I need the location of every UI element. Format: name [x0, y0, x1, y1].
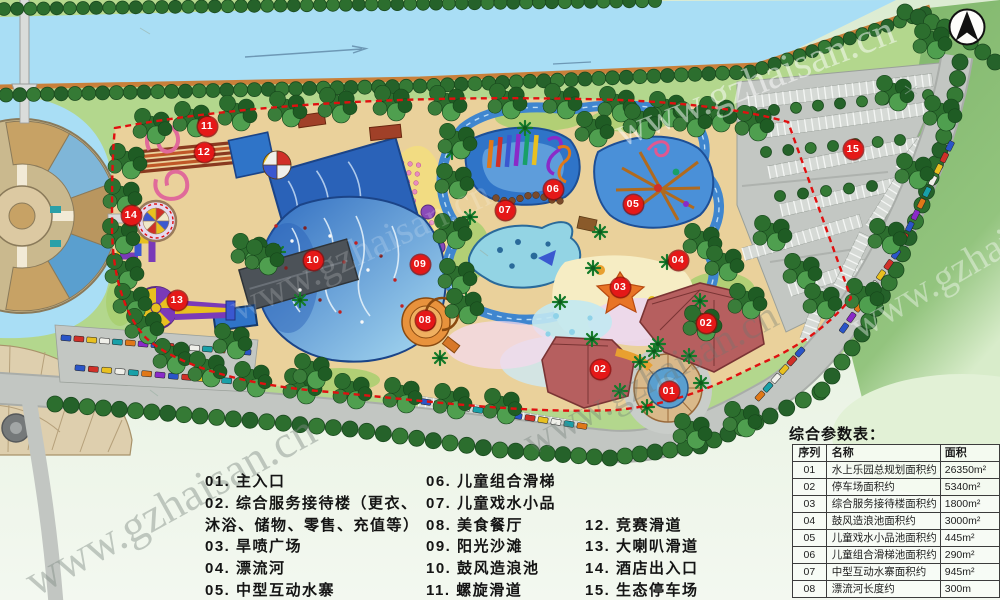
param-table-row: 05儿童戏水小品池面积约445m² [793, 530, 1000, 547]
plan-marker-03: 03 [611, 278, 630, 297]
plan-marker-02: 02 [591, 360, 610, 379]
param-table-title: 综合参数表： [789, 423, 885, 444]
legend-item: 09. 阳光沙滩 [426, 535, 523, 556]
param-table-header: 面积 [940, 445, 999, 462]
plan-marker-09: 09 [411, 255, 430, 274]
param-table-row: 03综合服务接待楼面积约1800m² [793, 496, 1000, 513]
param-table-row: 08漂流河长度约300m [793, 581, 1000, 598]
legend-item: 05. 中型互动水寨 [205, 579, 335, 600]
legend-item: 10. 鼓风造浪池 [426, 557, 540, 578]
plan-marker-07: 07 [496, 201, 515, 220]
legend-item: 11. 螺旋滑道 [426, 579, 522, 600]
legend-item: 06. 儿童组合滑梯 [426, 470, 556, 491]
water-park-master-plan: www.gzhaisan.cnwww.gzhaisan.cnwww.gzhais… [0, 0, 1000, 600]
legend-item: 01. 主入口 [205, 470, 286, 491]
plan-marker-04: 04 [669, 251, 688, 270]
plan-marker-01: 01 [660, 382, 679, 401]
legend-item: 07. 儿童戏水小品 [426, 492, 556, 513]
legend-item: 13. 大喇叭滑道 [585, 535, 699, 556]
plan-marker-13: 13 [168, 291, 187, 310]
legend-item: 15. 生态停车场 [585, 579, 699, 600]
plan-marker-11: 11 [198, 117, 217, 136]
plan-marker-10: 10 [304, 251, 323, 270]
param-table-row: 04鼓风造浪池面积约3000m² [793, 513, 1000, 530]
plan-marker-12: 12 [195, 143, 214, 162]
north-arrow-icon [946, 6, 988, 48]
param-table-row: 01水上乐园总规划面积约26350m² [793, 462, 1000, 479]
legend-item: 沐浴、储物、零售、充值等） [205, 514, 420, 535]
legend-item: 08. 美食餐厅 [426, 514, 523, 535]
legend-item: 03. 旱喷广场 [205, 535, 302, 556]
plan-marker-02: 02 [697, 314, 716, 333]
param-table-header: 名称 [826, 445, 940, 462]
plan-marker-08: 08 [416, 311, 435, 330]
legend-item: 04. 漂流河 [205, 557, 286, 578]
param-table-row: 06儿童组合滑梯池面积约290m² [793, 547, 1000, 564]
param-table-row: 07中型互动水寨面积约945m² [793, 564, 1000, 581]
plan-marker-14: 14 [122, 206, 141, 225]
param-table: 序列名称面积01水上乐园总规划面积约26350m²02停车场面积约5340m²0… [792, 444, 1000, 598]
plan-marker-06: 06 [544, 180, 563, 199]
plan-marker-05: 05 [624, 195, 643, 214]
param-table-row: 02停车场面积约5340m² [793, 479, 1000, 496]
legend-item: 14. 酒店出入口 [585, 557, 699, 578]
legend-item: 12. 竞赛滑道 [585, 514, 682, 535]
plan-marker-15: 15 [844, 140, 863, 159]
param-table-header: 序列 [793, 445, 827, 462]
legend-item: 02. 综合服务接待楼（更衣、 [205, 492, 418, 513]
